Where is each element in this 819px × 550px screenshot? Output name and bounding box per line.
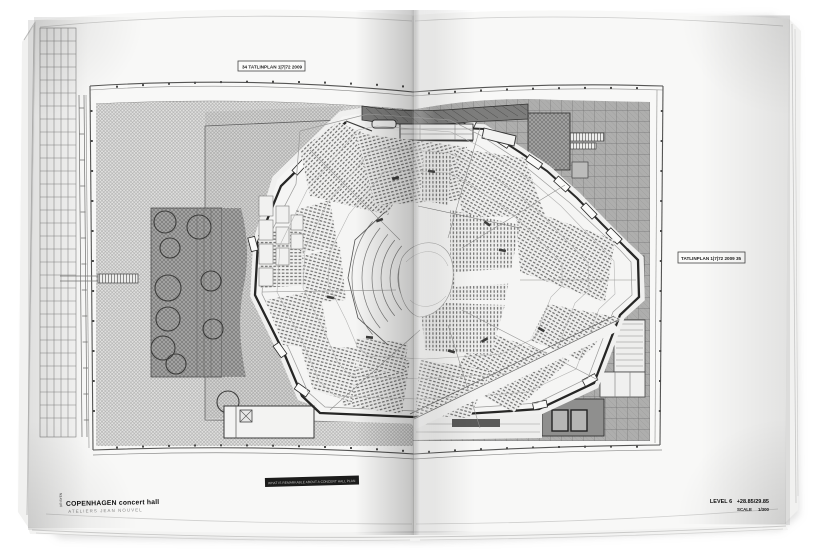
- svg-text:34 TATLINPLAN 1|7|72 2009: 34 TATLINPLAN 1|7|72 2009: [242, 65, 303, 70]
